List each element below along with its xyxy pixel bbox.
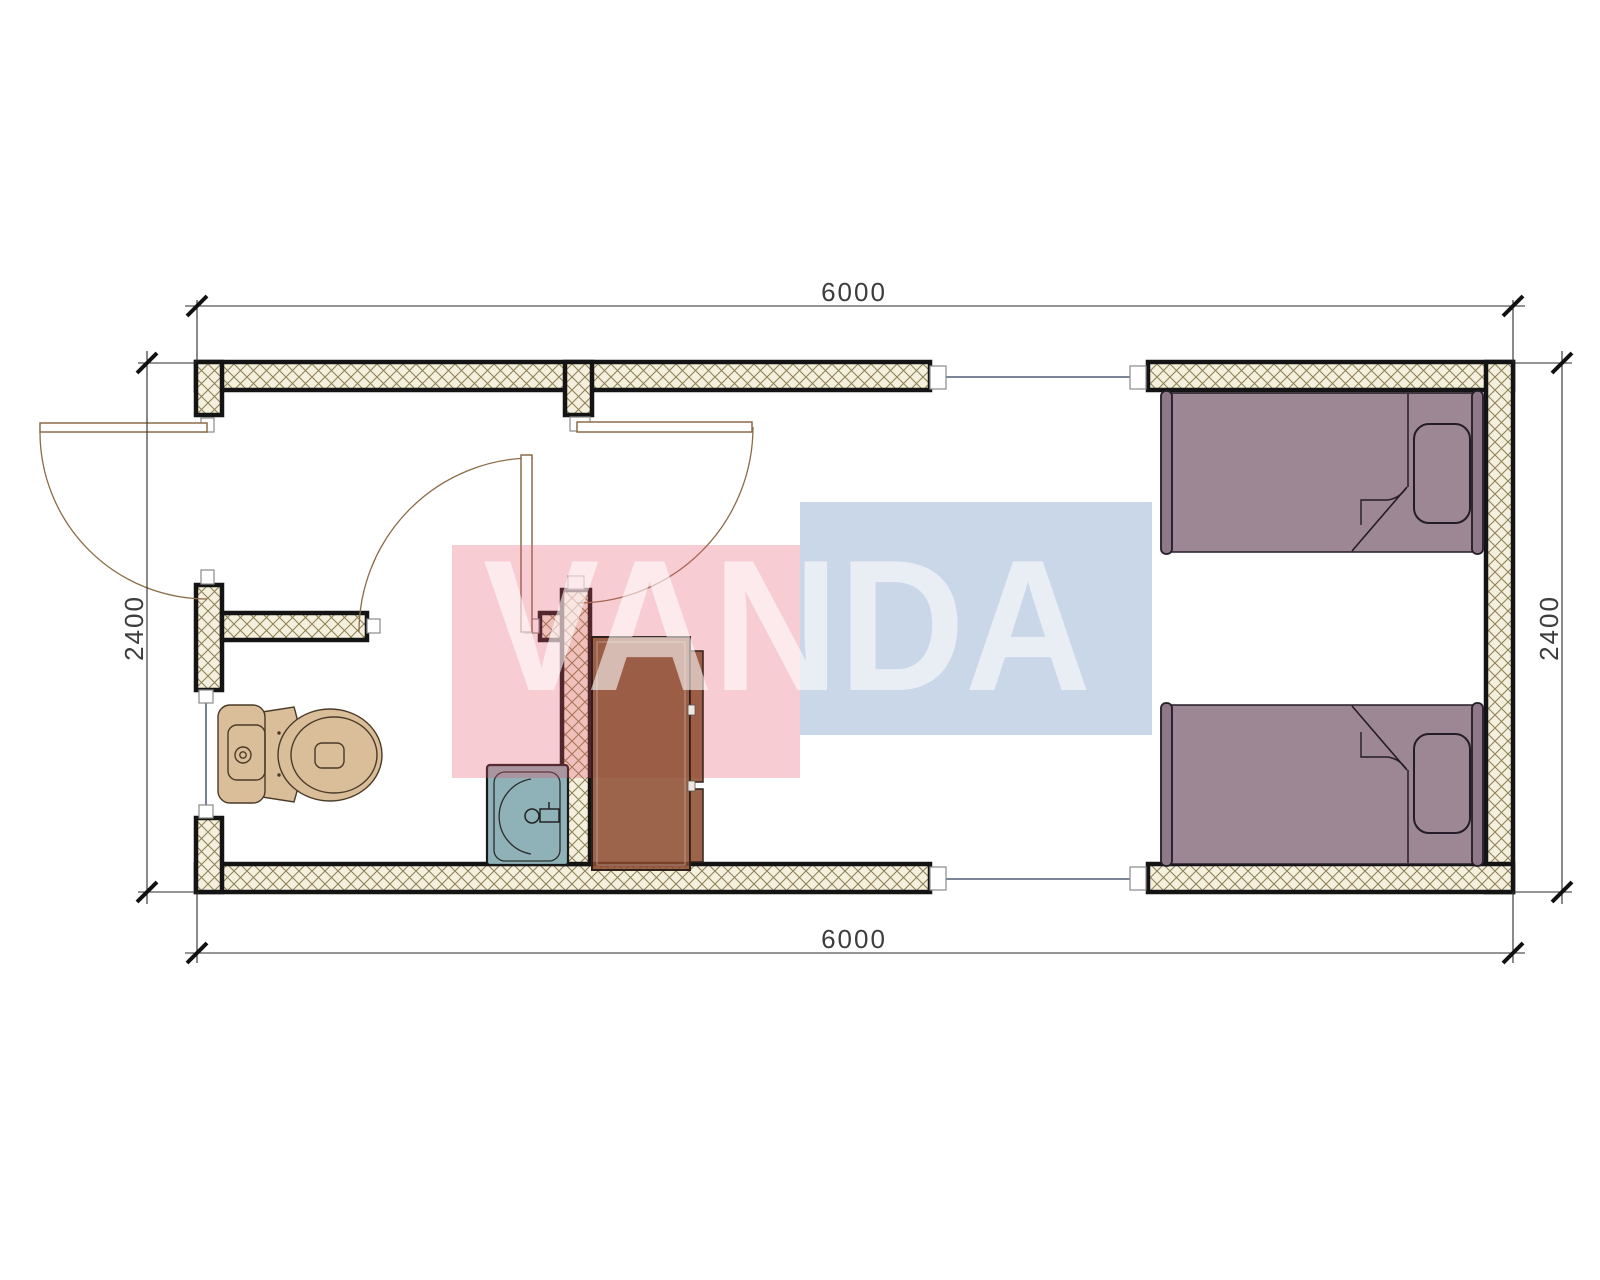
bed-bottom: [1161, 703, 1483, 866]
frame-jamb: [201, 570, 214, 584]
dim-text-right: 2400: [1534, 595, 1564, 661]
floor-plan-page: VANDA 6000 6000 2400 2400: [0, 0, 1600, 1280]
frame-jamb: [930, 366, 946, 389]
wall-top-right-section: [1148, 362, 1513, 390]
wall-entrance-jamb-stub: [196, 362, 222, 415]
frame-jamb: [1130, 867, 1146, 890]
bed-top: [1161, 391, 1483, 554]
watermark-text: VANDA: [483, 521, 1091, 730]
partition-bathroom-bar: [222, 613, 367, 640]
wall-right: [1486, 362, 1513, 892]
toilet-bowl: [278, 709, 382, 801]
toilet-tank: [218, 705, 265, 803]
bed-headboard: [1161, 391, 1172, 554]
wash-basin: [487, 765, 568, 865]
toilet-seat-bolt: [277, 773, 280, 776]
wall-bottom-right-section: [1148, 864, 1513, 892]
wardrobe-handle: [688, 781, 695, 791]
entrance-door-leaf: [40, 423, 207, 432]
basin-drain: [525, 809, 539, 823]
bed-pillow: [1414, 424, 1470, 523]
dim-text-top: 6000: [821, 277, 887, 307]
wall-left-middle-segment: [196, 585, 222, 690]
dim-text-left: 2400: [119, 595, 149, 661]
basin-faucet: [540, 809, 559, 822]
wall-door-head-stub: [565, 362, 592, 415]
frame-jamb: [930, 867, 946, 890]
entrance-door-swing: [40, 432, 207, 599]
room-door-leaf: [577, 422, 752, 432]
toilet-seat-bolt: [277, 731, 280, 734]
toilet: [218, 705, 382, 803]
bed-footboard: [1472, 703, 1483, 866]
bed-headboard: [1161, 703, 1172, 866]
wardrobe-door-panel: [690, 789, 703, 862]
floor-plan: VANDA 6000 6000 2400 2400: [0, 0, 1600, 1280]
frame-jamb: [199, 690, 213, 703]
frame-jamb: [1130, 366, 1146, 389]
frame-jamb: [367, 619, 380, 633]
bed-pillow: [1414, 734, 1470, 833]
frame-jamb: [199, 805, 213, 818]
bed-footboard: [1472, 391, 1483, 554]
wall-left-bottom-segment: [196, 818, 222, 892]
dim-text-bottom: 6000: [821, 924, 887, 954]
wall-bottom-left-section: [196, 864, 930, 892]
